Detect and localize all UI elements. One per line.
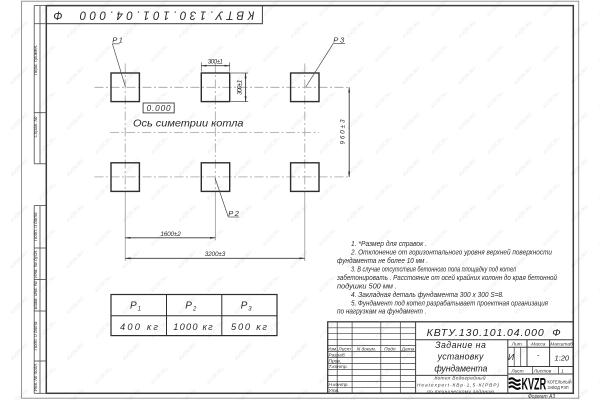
svg-text:Ось симетрии котла: Ось симетрии котла xyxy=(133,119,244,130)
svg-text:Подп.: Подп. xyxy=(384,346,397,352)
svg-text:ЗАВОД РЭП: ЗАВОД РЭП xyxy=(548,385,569,390)
svg-text:Справ. №: Справ. № xyxy=(33,117,38,138)
svg-text:Взам. инв. №: Взам. инв. № xyxy=(33,281,38,309)
svg-text:2. Отклонение от горизонтальн: 2. Отклонение от горизонтального уровня … xyxy=(350,248,552,256)
svg-text:Масса: Масса xyxy=(531,341,546,347)
svg-text:подушки 500 мм .: подушки 500 мм . xyxy=(337,283,397,291)
svg-text:Лит.: Лит. xyxy=(511,341,523,347)
svg-text:Heatexpert-КВр-1,5-К(РВР): Heatexpert-КВр-1,5-К(РВР) xyxy=(417,382,499,388)
svg-text:300±1: 300±1 xyxy=(237,79,244,95)
svg-text:Лист: Лист xyxy=(510,368,523,374)
svg-text:Утв.: Утв. xyxy=(329,388,340,394)
svg-text:Пров.: Пров. xyxy=(329,358,342,364)
svg-text:установку: установку xyxy=(437,351,484,361)
svg-text:5. Фундамент под котел разраб: 5. Фундамент под котел разрабатывает про… xyxy=(351,300,548,308)
svg-text:Изм.: Изм. xyxy=(327,346,337,352)
svg-text:KVZR: KVZR xyxy=(522,375,547,394)
svg-text:Формат А3: Формат А3 xyxy=(528,394,556,400)
svg-text:И: И xyxy=(508,352,515,362)
svg-text:Котел Водогрейный: Котел Водогрейный xyxy=(435,374,486,381)
svg-text:фундамента не более 10 мм .: фундамента не более 10 мм . xyxy=(337,257,428,265)
svg-text:1: 1 xyxy=(561,368,564,374)
svg-text:1600±2: 1600±2 xyxy=(160,231,181,238)
svg-text:1. *Размер для справок .: 1. *Размер для справок . xyxy=(351,240,427,248)
svg-text:Задание на: Задание на xyxy=(435,340,486,350)
svg-text:Дата: Дата xyxy=(401,346,415,352)
svg-text:Разраб.: Разраб. xyxy=(329,352,346,358)
svg-text:забетонировать . Расстояние от: забетонировать . Расстояние от осей край… xyxy=(336,274,557,282)
svg-text:Подп. и дата: Подп. и дата xyxy=(33,212,38,241)
svg-text:Листов: Листов xyxy=(533,368,552,374)
svg-text:Инв. № дубл.: Инв. № дубл. xyxy=(33,250,38,278)
svg-text:Масштаб: Масштаб xyxy=(550,341,573,347)
svg-text:по техническому заданию: по техническому заданию xyxy=(427,389,494,395)
svg-text:КВТУ.130.101.04.000 Ф: КВТУ.130.101.04.000 Ф xyxy=(427,327,561,339)
svg-text:4. Закладная деталь фундамент: 4. Закладная деталь фундамента 300 x 300… xyxy=(351,291,504,299)
svg-text:P2: P2 xyxy=(228,209,239,218)
svg-text:фундамента: фундамента xyxy=(434,363,487,373)
svg-text:Подп. и дата: Подп. и дата xyxy=(33,321,38,350)
svg-text:300±1: 300±1 xyxy=(208,59,224,66)
svg-text:3200±3: 3200±3 xyxy=(205,251,226,258)
svg-text:Инв. № подл.: Инв. № подл. xyxy=(33,363,38,392)
svg-text:по нагрузкам на фундамент .: по нагрузкам на фундамент . xyxy=(337,307,427,315)
svg-text:0.000: 0.000 xyxy=(147,104,171,113)
svg-text:Перв. примен.: Перв. примен. xyxy=(33,45,38,76)
svg-text:3. В случае отсутствия бетонн: 3. В случае отсутствия бетонного пола пл… xyxy=(351,266,516,274)
svg-text:КОТЕЛЬНЫЙ: КОТЕЛЬНЫЙ xyxy=(548,379,572,384)
svg-text:Т.контр.: Т.контр. xyxy=(329,364,348,370)
svg-text:Лист: Лист xyxy=(337,346,350,352)
svg-text:1:20: 1:20 xyxy=(554,354,569,363)
svg-text:Н.контр.: Н.контр. xyxy=(329,382,349,388)
svg-text:P3: P3 xyxy=(333,35,345,44)
svg-text:N докум.: N докум. xyxy=(357,346,376,352)
